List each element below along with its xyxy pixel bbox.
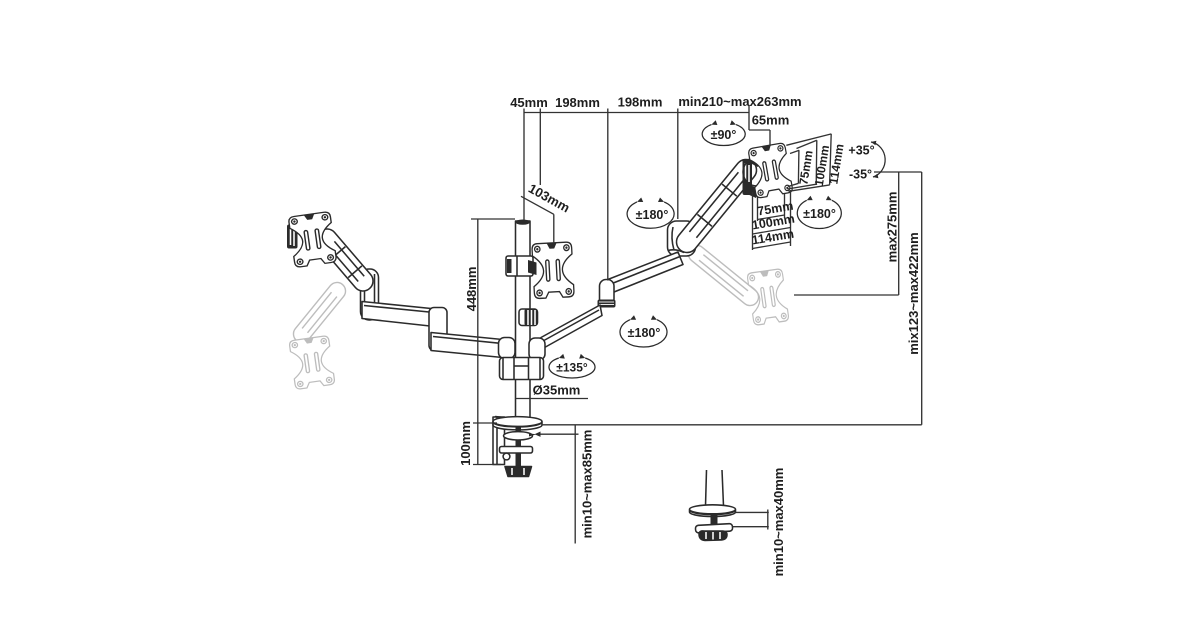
- svg-text:min10~max85mm: min10~max85mm: [580, 430, 595, 539]
- svg-text:45mm: 45mm: [510, 95, 548, 110]
- svg-text:±180°: ±180°: [803, 207, 836, 221]
- svg-text:Ø35mm: Ø35mm: [533, 383, 581, 398]
- svg-text:+35°: +35°: [848, 144, 874, 158]
- svg-text:65mm: 65mm: [752, 113, 790, 128]
- svg-text:198mm: 198mm: [555, 95, 600, 110]
- svg-text:min210~max263mm: min210~max263mm: [678, 94, 801, 109]
- svg-text:±180°: ±180°: [636, 208, 669, 222]
- svg-text:max275mm: max275mm: [885, 192, 900, 263]
- svg-text:mix123~max422mm: mix123~max422mm: [906, 232, 921, 355]
- svg-text:448mm: 448mm: [464, 267, 479, 312]
- svg-text:198mm: 198mm: [618, 95, 663, 110]
- svg-text:-35°: -35°: [849, 168, 872, 182]
- svg-text:100mm: 100mm: [458, 421, 473, 466]
- svg-text:±180°: ±180°: [628, 326, 661, 340]
- svg-text:±90°: ±90°: [711, 128, 737, 142]
- svg-text:min10~max40mm: min10~max40mm: [771, 468, 786, 577]
- svg-text:±135°: ±135°: [556, 361, 588, 375]
